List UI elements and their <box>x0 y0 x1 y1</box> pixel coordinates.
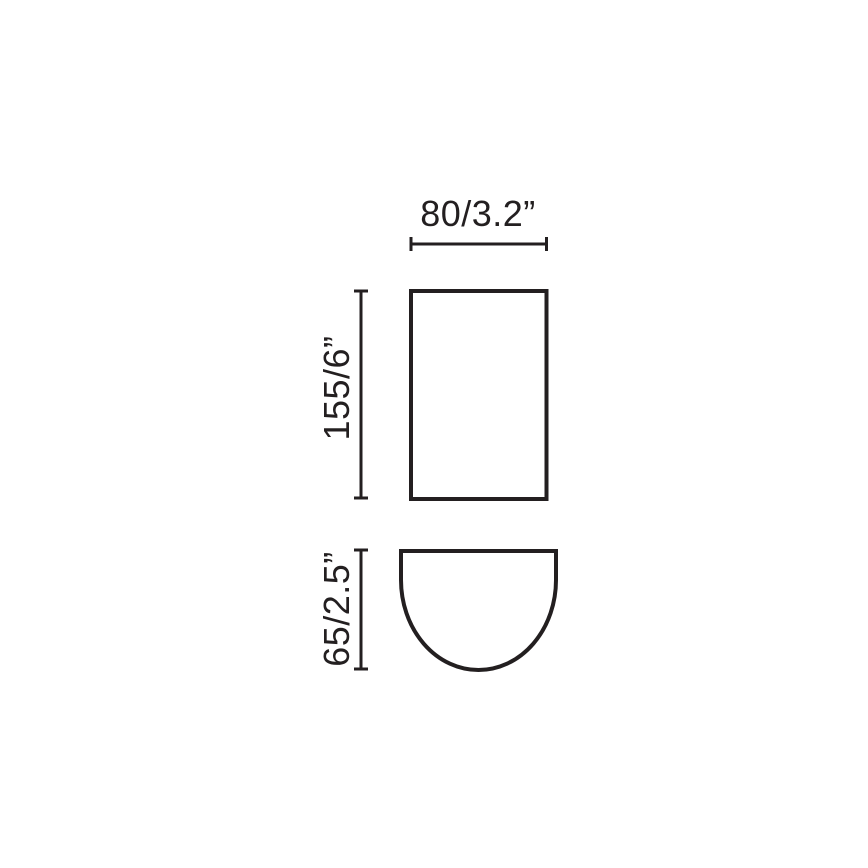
height-dimension-label: 155/6” <box>316 335 357 440</box>
depth-dimension-label: 65/2.5” <box>316 551 357 667</box>
profile-view-outline <box>401 551 556 670</box>
width-dimension-label: 80/3.2” <box>420 193 536 234</box>
dimension-diagram-page: 80/3.2” 155/6” 65/2.5” <box>0 0 868 868</box>
width-dimension: 80/3.2” <box>411 193 547 251</box>
dimension-diagram: 80/3.2” 155/6” 65/2.5” <box>0 0 868 868</box>
height-dimension: 155/6” <box>316 291 368 498</box>
front-view-outline <box>411 291 547 499</box>
depth-dimension: 65/2.5” <box>316 550 368 669</box>
